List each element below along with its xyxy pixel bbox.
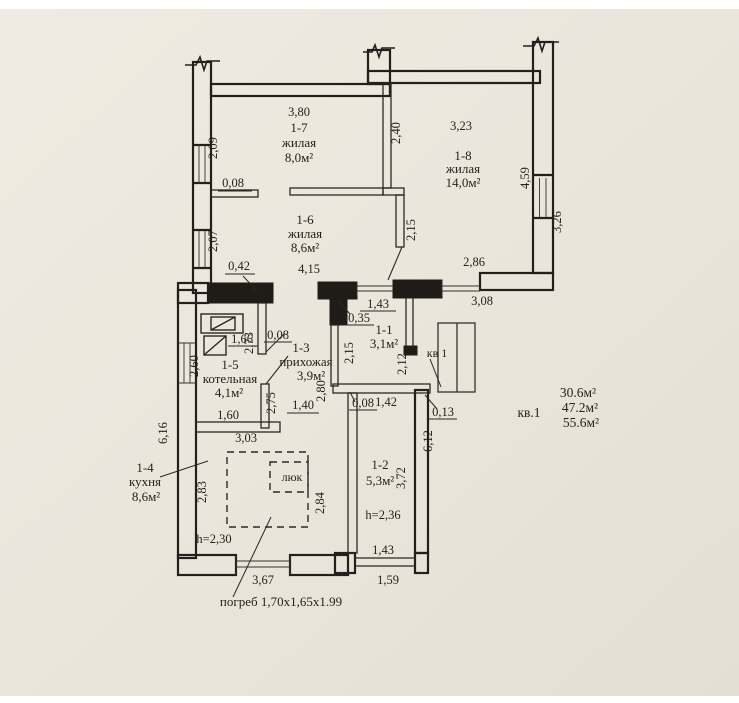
dim-2-84: 2,84 xyxy=(313,491,327,514)
paper-background xyxy=(0,0,739,703)
room-1-5-number: 1-5 xyxy=(221,357,238,372)
room-1-1-area: 3,1м² xyxy=(370,336,398,351)
room-1-3-area: 3,9м² xyxy=(297,368,325,383)
room-1-3-number: 1-3 xyxy=(292,340,309,355)
apartment-area-total: 55.6м² xyxy=(563,415,599,430)
dim-3-80: 3,80 xyxy=(288,105,310,119)
dim-0-08-mid: 0,08 xyxy=(267,328,289,342)
dim-6-16: 6,16 xyxy=(156,422,170,444)
dim-2-60: 2,60 xyxy=(187,355,201,377)
dim-1-43-a: 1,43 xyxy=(367,297,389,311)
dim-2-86: 2,86 xyxy=(463,255,485,269)
dim-0-42: 0,42 xyxy=(228,259,250,273)
room-1-6-number: 1-6 xyxy=(296,212,314,227)
room-1-4-area: 8,6м² xyxy=(132,489,160,504)
room-1-5-name: котельная xyxy=(203,371,258,386)
dim-1-60: 1,60 xyxy=(217,408,239,422)
dim-0-13: 0,13 xyxy=(432,405,454,419)
dim-1-59: 1,59 xyxy=(377,573,399,587)
cellar-note: погреб 1,70х1,65х1.99 xyxy=(220,594,342,609)
dim-2-07: 2,07 xyxy=(206,230,220,252)
apartment-area-usable: 47.2м² xyxy=(562,400,598,415)
dim-2-40: 2,40 xyxy=(389,122,403,144)
apartment-area-living: 30.6м² xyxy=(560,385,596,400)
dim-2-15-b: 2,15 xyxy=(342,342,356,364)
room-1-7-area: 8,0м² xyxy=(285,150,313,165)
room-1-2-area: 5,3м² xyxy=(366,473,394,488)
dim-0-08-left: 0,08 xyxy=(222,176,244,190)
dim-1-42: 1,42 xyxy=(375,395,397,409)
floor-plan-svg: 3,80 2,09 0,08 2,07 2,40 3,23 4,59 3,26 … xyxy=(0,0,739,703)
dim-2-12: 2,12 xyxy=(395,353,409,375)
room-1-7-name: жилая xyxy=(281,135,316,150)
room-1-8-name: жилая xyxy=(445,161,480,176)
room-1-4-height: h=2,30 xyxy=(196,532,231,546)
room-1-6-area: 8,6м² xyxy=(291,240,319,255)
dim-2-83: 2,83 xyxy=(195,481,209,503)
room-1-1-number: 1-1 xyxy=(375,322,392,337)
room-1-8-area: 14,0м² xyxy=(446,175,481,190)
dim-2-73: 2,73 xyxy=(242,332,256,354)
room-1-4-number: 1-4 xyxy=(136,460,154,475)
dim-1-43-b: 1,43 xyxy=(372,543,394,557)
apartment-number: кв.1 xyxy=(517,405,540,420)
dim-3-08: 3,08 xyxy=(471,294,493,308)
dim-3-03: 3,03 xyxy=(235,431,257,445)
floor-plan-page: 3,80 2,09 0,08 2,07 2,40 3,23 4,59 3,26 … xyxy=(0,0,739,703)
room-1-5-area: 4,1м² xyxy=(215,385,243,400)
dim-3-72: 3,72 xyxy=(394,467,408,489)
dim-3-23: 3,23 xyxy=(450,119,472,133)
dim-2-09: 2,09 xyxy=(206,137,220,159)
dim-2-80: 2,80 xyxy=(314,380,328,402)
dim-0-08-r12: 0,08 xyxy=(352,396,374,410)
dim-2-15-a: 2,15 xyxy=(404,219,418,241)
dim-2-75: 2,75 xyxy=(264,392,278,414)
dim-6-12: 6,12 xyxy=(421,430,435,452)
dim-1-40: 1,40 xyxy=(292,398,314,412)
room-1-6-name: жилая xyxy=(287,226,322,241)
dim-3-26: 3,26 xyxy=(550,211,564,233)
room-1-2-number: 1-2 xyxy=(371,457,388,472)
room-1-3-name: прихожая xyxy=(279,354,332,369)
dim-0-35: 0,35 xyxy=(348,311,370,325)
entry-door-label: кв 1 xyxy=(427,346,448,360)
dim-3-67: 3,67 xyxy=(252,573,274,587)
dim-4-15: 4,15 xyxy=(298,262,320,276)
room-1-7-number: 1-7 xyxy=(290,120,308,135)
hatch-label: люк xyxy=(282,470,303,484)
room-1-2-height: h=2,36 xyxy=(365,508,400,522)
dim-4-59: 4,59 xyxy=(518,167,532,189)
room-1-4-name: кухня xyxy=(129,474,161,489)
